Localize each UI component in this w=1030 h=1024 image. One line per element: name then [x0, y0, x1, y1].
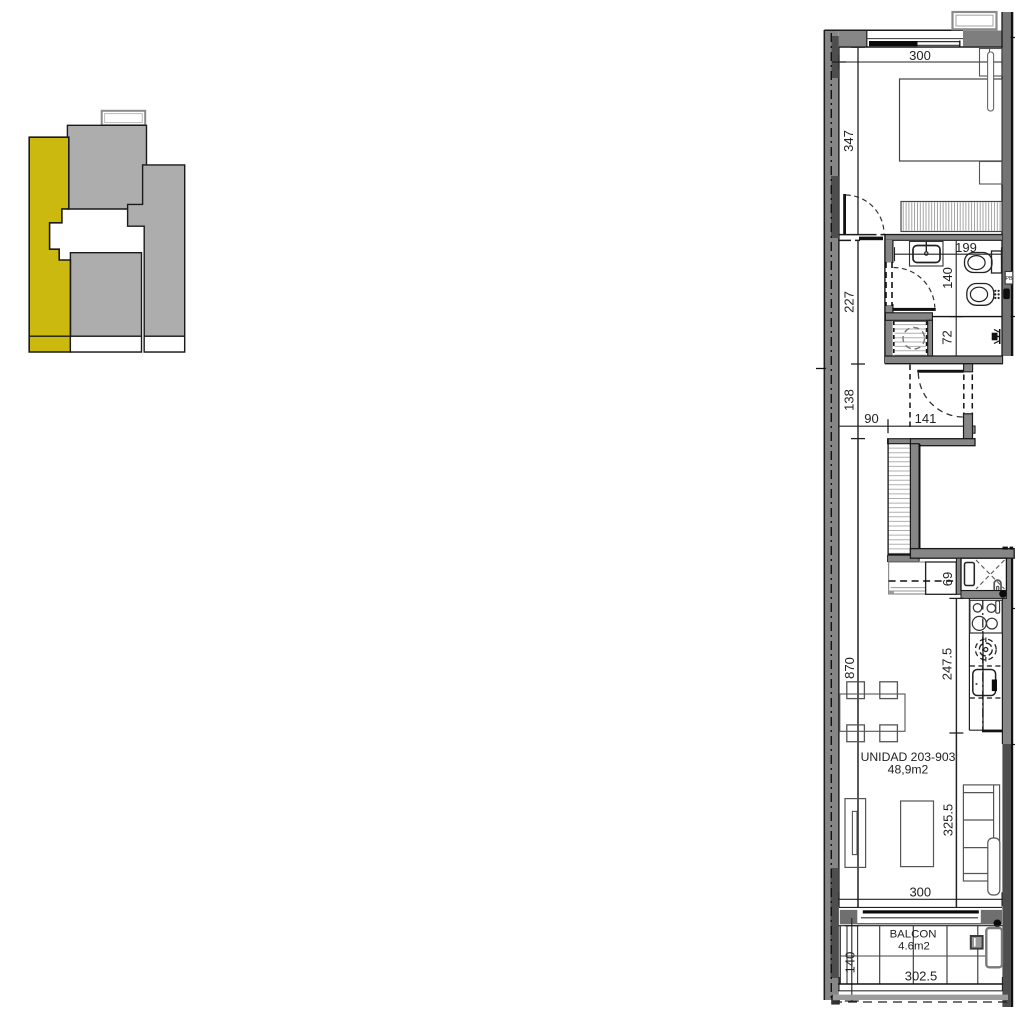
- svg-text:69: 69: [940, 572, 955, 586]
- svg-text:141: 141: [915, 411, 937, 426]
- svg-text:302.5: 302.5: [905, 969, 938, 984]
- svg-text:BALCON: BALCON: [890, 929, 937, 941]
- svg-text:90: 90: [864, 411, 878, 426]
- svg-text:347: 347: [841, 130, 856, 152]
- svg-text:140: 140: [843, 952, 858, 974]
- svg-text:138: 138: [842, 389, 857, 411]
- svg-text:870: 870: [842, 657, 857, 679]
- svg-text:140: 140: [940, 267, 955, 289]
- svg-text:4.6m2: 4.6m2: [898, 941, 930, 953]
- svg-text:227: 227: [842, 291, 857, 313]
- svg-text:72: 72: [940, 330, 955, 344]
- svg-text:325.5: 325.5: [940, 804, 955, 837]
- svg-text:300: 300: [909, 885, 931, 900]
- svg-text:48,9m2: 48,9m2: [888, 763, 929, 777]
- svg-text:247.5: 247.5: [939, 648, 954, 681]
- svg-text:PB: PB: [1005, 276, 1013, 282]
- svg-text:300: 300: [909, 48, 931, 63]
